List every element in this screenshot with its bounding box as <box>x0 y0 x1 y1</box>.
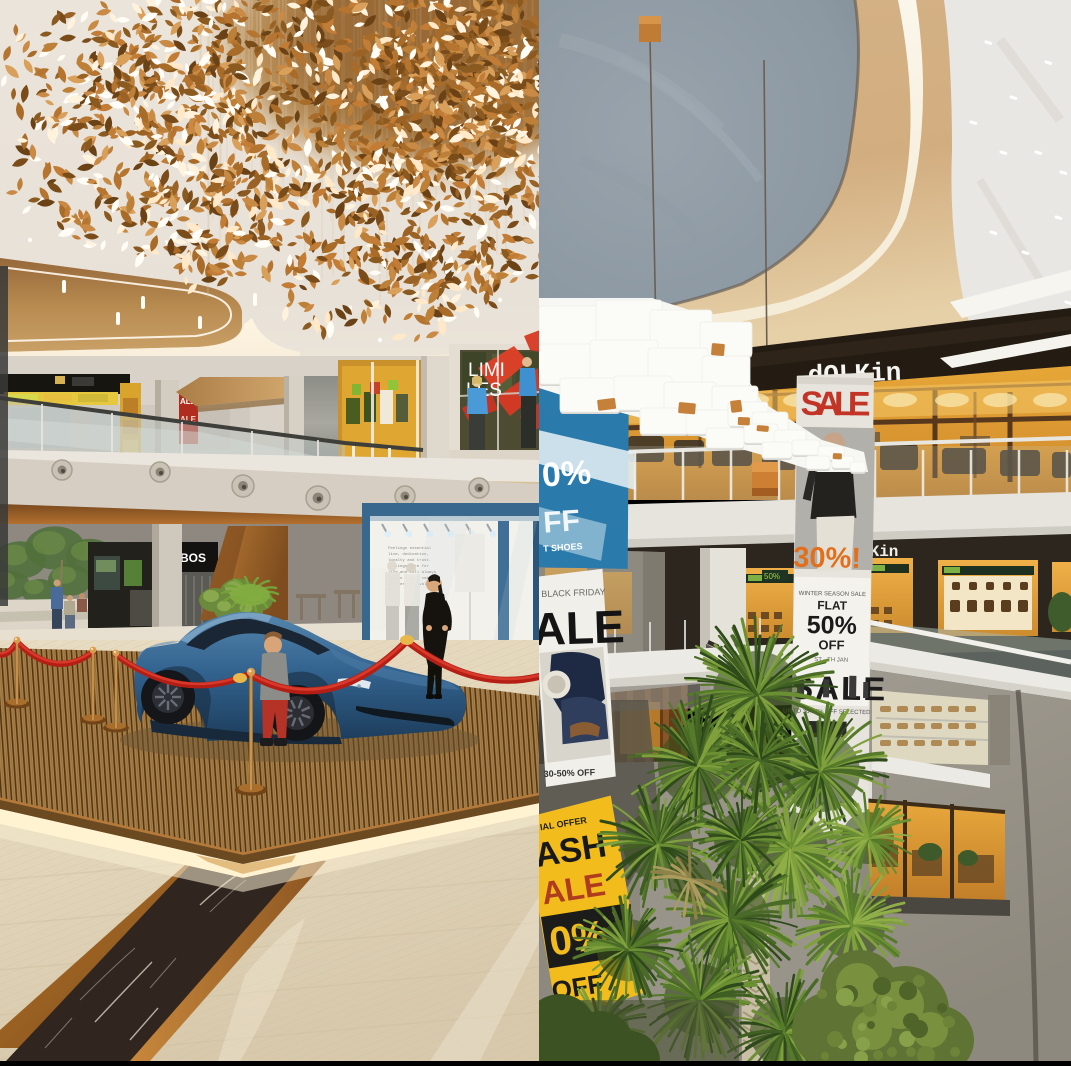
svg-text:BOS: BOS <box>180 551 206 565</box>
svg-text:ALE: ALE <box>532 600 626 655</box>
svg-text:30-50% OFF: 30-50% OFF <box>543 767 595 779</box>
svg-text:FF: FF <box>542 504 581 539</box>
svg-text:OFF: OFF <box>818 637 844 652</box>
svg-text:30%!: 30%! <box>793 542 861 575</box>
svg-text:50%: 50% <box>764 572 780 581</box>
svg-text:WINTER SEASON SALE: WINTER SEASON SALE <box>799 591 866 598</box>
svg-text:50%: 50% <box>807 611 858 640</box>
svg-text:0%: 0% <box>541 453 593 494</box>
svg-text:SALE: SALE <box>800 385 870 424</box>
